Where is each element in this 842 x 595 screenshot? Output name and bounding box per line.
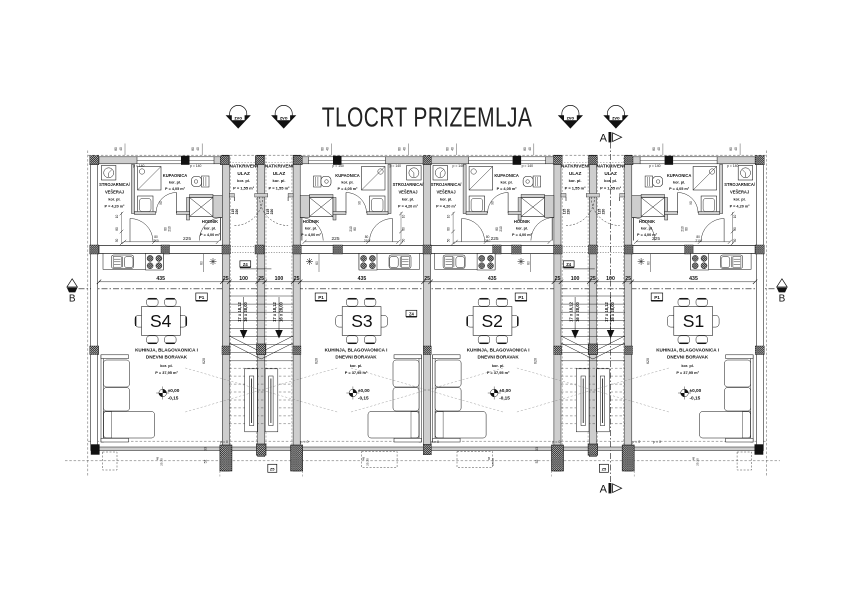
svg-text:80: 80 xyxy=(685,227,689,231)
svg-text:-0,15: -0,15 xyxy=(690,396,701,401)
svg-text:210: 210 xyxy=(349,226,353,232)
svg-text:HODNIK: HODNIK xyxy=(514,219,530,224)
svg-text:kor. pl.: kor. pl. xyxy=(341,180,353,184)
svg-text:80: 80 xyxy=(447,227,451,231)
svg-text:S3: S3 xyxy=(351,311,372,331)
svg-text:210: 210 xyxy=(485,239,491,243)
svg-text:kor. pl.: kor. pl. xyxy=(492,363,505,368)
svg-text:kor. pl.: kor. pl. xyxy=(204,227,216,231)
svg-text:620: 620 xyxy=(315,358,319,364)
svg-text:25: 25 xyxy=(424,276,430,282)
svg-text:P = 4,20 m²: P = 4,20 m² xyxy=(398,205,419,209)
svg-text:50: 50 xyxy=(733,239,737,243)
svg-text:16 x 28,00: 16 x 28,00 xyxy=(279,301,284,321)
svg-text:P = 37,95 m²: P = 37,95 m² xyxy=(487,370,510,375)
svg-text:p = 140: p = 140 xyxy=(190,164,202,168)
svg-text:620: 620 xyxy=(646,358,650,364)
svg-text:80: 80 xyxy=(320,147,324,151)
svg-text:kor. pl.: kor. pl. xyxy=(500,180,512,184)
svg-text:40: 40 xyxy=(528,147,532,151)
svg-text:16 x 28,00: 16 x 28,00 xyxy=(610,301,615,321)
svg-text:kor. pl.: kor. pl. xyxy=(681,363,694,368)
svg-text:p = 140: p = 140 xyxy=(522,164,534,168)
svg-text:ULAZ: ULAZ xyxy=(273,171,286,176)
svg-text:KUHINJA, BLAGOVAONICA i: KUHINJA, BLAGOVAONICA i xyxy=(656,348,719,353)
svg-text:P = 4,05 m²: P = 4,05 m² xyxy=(338,187,359,191)
svg-text:P = 4,05 m²: P = 4,05 m² xyxy=(165,187,186,191)
svg-text:620: 620 xyxy=(202,358,206,364)
svg-text:A: A xyxy=(600,133,608,145)
svg-text:kor. pl.: kor. pl. xyxy=(516,227,528,231)
svg-text:25: 25 xyxy=(590,276,596,282)
svg-text:33: 33 xyxy=(203,447,207,451)
svg-text:p = 0: p = 0 xyxy=(220,440,228,444)
svg-text:60: 60 xyxy=(315,261,319,265)
svg-text:p = 140: p = 140 xyxy=(453,164,465,168)
svg-text:100: 100 xyxy=(606,276,615,282)
svg-text:STROJARNICA/: STROJARNICA/ xyxy=(99,182,131,187)
svg-text:VEŠERAJ: VEŠERAJ xyxy=(105,189,124,194)
svg-text:50: 50 xyxy=(402,239,406,243)
svg-text:80: 80 xyxy=(115,227,119,231)
svg-text:80: 80 xyxy=(446,147,450,151)
svg-text:VEŠERAJ: VEŠERAJ xyxy=(398,189,417,194)
svg-text:P1: P1 xyxy=(654,295,660,300)
svg-text:±0,00: ±0,00 xyxy=(690,388,702,393)
svg-text:Z5: Z5 xyxy=(602,466,607,471)
svg-text:220: 220 xyxy=(567,209,571,215)
svg-text:90: 90 xyxy=(689,201,693,205)
svg-text:10: 10 xyxy=(402,215,406,219)
svg-text:50: 50 xyxy=(115,239,119,243)
svg-text:ULAZ: ULAZ xyxy=(604,171,617,176)
svg-text:90: 90 xyxy=(491,201,495,205)
svg-text:kor. pl.: kor. pl. xyxy=(569,178,582,183)
svg-text:25 20: 25 20 xyxy=(491,458,495,466)
svg-text:VEŠERAJ: VEŠERAJ xyxy=(730,189,749,194)
svg-text:kor. pl.: kor. pl. xyxy=(402,198,414,202)
svg-text:210: 210 xyxy=(168,226,172,232)
svg-text:p = 140: p = 140 xyxy=(390,164,402,168)
svg-text:33: 33 xyxy=(535,447,539,451)
svg-text:P = 4,00 m²: P = 4,00 m² xyxy=(200,233,221,237)
svg-text:25: 25 xyxy=(223,276,229,282)
svg-text:p = 140: p = 140 xyxy=(649,164,661,168)
svg-text:220: 220 xyxy=(235,209,239,215)
svg-text:210: 210 xyxy=(364,239,370,243)
svg-text:B: B xyxy=(779,294,786,305)
svg-text:P = 4,00 m²: P = 4,00 m² xyxy=(512,233,533,237)
svg-text:80: 80 xyxy=(729,147,733,151)
svg-text:Z4: Z4 xyxy=(566,262,572,267)
svg-text:40: 40 xyxy=(119,147,123,151)
svg-text:40: 40 xyxy=(325,147,329,151)
svg-text:435: 435 xyxy=(156,276,165,282)
svg-text:80: 80 xyxy=(523,147,527,151)
svg-text:NATKRIVENI: NATKRIVENI xyxy=(561,164,589,169)
svg-text:25: 25 xyxy=(555,276,561,282)
svg-text:10: 10 xyxy=(115,215,119,219)
svg-text:NATKRIVENI: NATKRIVENI xyxy=(265,164,293,169)
svg-text:P = 4,20 m²: P = 4,20 m² xyxy=(436,205,457,209)
svg-text:STROJARNICA/: STROJARNICA/ xyxy=(393,182,425,187)
svg-text:40: 40 xyxy=(657,147,661,151)
svg-text:kor. pl.: kor. pl. xyxy=(673,180,685,184)
svg-text:17 x 18,12: 17 x 18,12 xyxy=(237,301,242,321)
svg-text:P = 1,55 m²: P = 1,55 m² xyxy=(269,185,291,190)
svg-text:VEŠERAJ: VEŠERAJ xyxy=(437,189,456,194)
svg-text:Z4: Z4 xyxy=(243,262,249,267)
svg-text:90: 90 xyxy=(159,201,163,205)
svg-text:25: 25 xyxy=(258,276,264,282)
svg-text:KUHINJA, BLAGOVAONICA i: KUHINJA, BLAGOVAONICA i xyxy=(325,348,388,353)
svg-text:P = 4,05 m²: P = 4,05 m² xyxy=(497,187,518,191)
svg-text:DNEVNI BORAVAK: DNEVNI BORAVAK xyxy=(667,355,709,360)
svg-text:80: 80 xyxy=(652,147,656,151)
svg-text:17 x 18,12: 17 x 18,12 xyxy=(604,301,609,321)
svg-text:kor. pl.: kor. pl. xyxy=(237,178,250,183)
svg-text:80: 80 xyxy=(114,147,118,151)
svg-text:KUHINJA, BLAGOVAONICA i: KUHINJA, BLAGOVAONICA i xyxy=(135,348,198,353)
svg-text:kor. pl.: kor. pl. xyxy=(273,178,286,183)
svg-text:S4: S4 xyxy=(150,311,172,331)
svg-text:50: 50 xyxy=(447,239,451,243)
svg-text:kor. pl.: kor. pl. xyxy=(733,198,745,202)
svg-text:Z5: Z5 xyxy=(270,466,275,471)
svg-text:10: 10 xyxy=(733,215,737,219)
svg-text:p = 0: p = 0 xyxy=(431,440,439,444)
svg-text:210: 210 xyxy=(695,239,701,243)
svg-text:80: 80 xyxy=(353,227,357,231)
svg-text:435: 435 xyxy=(358,276,367,282)
svg-text:40: 40 xyxy=(734,147,738,151)
svg-text:kor. pl.: kor. pl. xyxy=(604,178,617,183)
svg-text:100: 100 xyxy=(275,276,284,282)
svg-text:KUPAONICA: KUPAONICA xyxy=(494,173,519,178)
svg-text:40: 40 xyxy=(196,147,200,151)
svg-text:DNEVNI BORAVAK: DNEVNI BORAVAK xyxy=(478,355,520,360)
svg-text:DNEVNI BORAVAK: DNEVNI BORAVAK xyxy=(335,355,377,360)
svg-text:zvo: zvo xyxy=(280,115,288,120)
svg-text:zvo: zvo xyxy=(234,115,242,120)
svg-text:210: 210 xyxy=(153,239,159,243)
svg-text:HODNIK: HODNIK xyxy=(303,219,319,224)
svg-text:80: 80 xyxy=(398,147,402,151)
svg-text:DNEVNI BORAVAK: DNEVNI BORAVAK xyxy=(146,355,188,360)
svg-text:225: 225 xyxy=(331,236,339,242)
svg-text:210: 210 xyxy=(499,226,503,232)
svg-text:225: 225 xyxy=(183,236,191,242)
svg-text:-0,15: -0,15 xyxy=(168,396,179,401)
svg-text:-0,15: -0,15 xyxy=(358,396,369,401)
svg-text:100: 100 xyxy=(239,276,248,282)
svg-text:620: 620 xyxy=(534,358,538,364)
svg-text:p = 0: p = 0 xyxy=(653,440,661,444)
svg-text:10: 10 xyxy=(447,215,451,219)
svg-text:STROJARNICA/: STROJARNICA/ xyxy=(724,182,756,187)
svg-text:P = 1,55 m²: P = 1,55 m² xyxy=(565,185,587,190)
svg-text:52: 52 xyxy=(535,460,539,464)
svg-text:25 20: 25 20 xyxy=(366,458,370,466)
svg-text:P = 37,95 m²: P = 37,95 m² xyxy=(676,370,699,375)
svg-text:225: 225 xyxy=(491,236,499,242)
svg-text:40: 40 xyxy=(451,147,455,151)
svg-text:90: 90 xyxy=(358,201,362,205)
svg-text:25 20: 25 20 xyxy=(160,458,164,466)
svg-text:P = 1,55 m²: P = 1,55 m² xyxy=(233,185,255,190)
svg-text:A: A xyxy=(600,484,608,496)
svg-text:NATKRIVENI: NATKRIVENI xyxy=(596,164,624,169)
svg-text:P1: P1 xyxy=(199,295,205,300)
svg-text:kor. pl.: kor. pl. xyxy=(305,227,317,231)
svg-text:±0,00: ±0,00 xyxy=(168,388,180,393)
svg-text:25: 25 xyxy=(294,276,300,282)
svg-text:60: 60 xyxy=(647,261,651,265)
svg-text:17 x 18,12: 17 x 18,12 xyxy=(568,301,573,321)
svg-text:80: 80 xyxy=(191,147,195,151)
svg-text:p = 140: p = 140 xyxy=(332,164,344,168)
svg-text:kor. pl.: kor. pl. xyxy=(160,363,173,368)
svg-text:KUPAONICA: KUPAONICA xyxy=(163,173,188,178)
svg-text:P1: P1 xyxy=(518,295,524,300)
svg-text:ULAZ: ULAZ xyxy=(569,171,582,176)
svg-text:kor. pl.: kor. pl. xyxy=(108,198,120,202)
svg-text:60: 60 xyxy=(527,261,531,265)
svg-text:HODNIK: HODNIK xyxy=(202,219,218,224)
svg-text:STROJARNICA/: STROJARNICA/ xyxy=(431,182,463,187)
svg-text:P = 4,00 m²: P = 4,00 m² xyxy=(301,233,322,237)
svg-text:210: 210 xyxy=(681,226,685,232)
svg-text:P = 4,20 m²: P = 4,20 m² xyxy=(105,205,126,209)
svg-text:S1: S1 xyxy=(683,311,704,331)
svg-text:S2: S2 xyxy=(481,311,502,331)
svg-text:435: 435 xyxy=(689,276,698,282)
svg-text:±0,00: ±0,00 xyxy=(499,388,511,393)
svg-text:NATKRIVENI: NATKRIVENI xyxy=(229,164,257,169)
svg-text:p = 140: p = 140 xyxy=(727,164,739,168)
svg-text:p = 0: p = 0 xyxy=(300,440,308,444)
svg-text:KUPAONICA: KUPAONICA xyxy=(667,173,692,178)
svg-text:kor. pl.: kor. pl. xyxy=(169,180,181,184)
svg-text:P = 4,20 m²: P = 4,20 m² xyxy=(730,205,751,209)
svg-text:P = 37,95 m²: P = 37,95 m² xyxy=(345,370,368,375)
svg-text:16 x 28,00: 16 x 28,00 xyxy=(575,301,580,321)
svg-text:p = 0: p = 0 xyxy=(552,440,560,444)
svg-text:p = 140: p = 140 xyxy=(133,164,145,168)
svg-text:100: 100 xyxy=(571,276,580,282)
svg-text:P = 1,55 m²: P = 1,55 m² xyxy=(600,185,622,190)
svg-text:TLOCRT PRIZEMLJA: TLOCRT PRIZEMLJA xyxy=(322,103,533,134)
svg-text:P = 4,05 m²: P = 4,05 m² xyxy=(669,187,690,191)
svg-text:25: 25 xyxy=(625,276,631,282)
svg-text:kor. pl.: kor. pl. xyxy=(350,363,363,368)
svg-text:B: B xyxy=(69,294,76,305)
svg-text:52: 52 xyxy=(203,460,207,464)
svg-text:225: 225 xyxy=(652,236,660,242)
svg-text:40: 40 xyxy=(403,147,407,151)
svg-text:±0,00: ±0,00 xyxy=(358,388,370,393)
svg-text:220: 220 xyxy=(602,209,606,215)
svg-text:60: 60 xyxy=(200,261,204,265)
svg-text:16 x 28,00: 16 x 28,00 xyxy=(243,301,248,321)
svg-text:zvo: zvo xyxy=(612,115,620,120)
svg-text:435: 435 xyxy=(488,276,497,282)
svg-text:p = 0: p = 0 xyxy=(632,440,640,444)
svg-text:KUHINJA, BLAGOVAONICA i: KUHINJA, BLAGOVAONICA i xyxy=(467,348,530,353)
svg-text:25 20: 25 20 xyxy=(696,458,700,466)
svg-text:-0,15: -0,15 xyxy=(499,396,510,401)
svg-text:17 x 18,12: 17 x 18,12 xyxy=(272,301,277,321)
svg-text:220: 220 xyxy=(270,209,274,215)
svg-text:kor. pl.: kor. pl. xyxy=(440,198,452,202)
svg-text:KUPAONICA: KUPAONICA xyxy=(335,173,360,178)
svg-text:ULAZ: ULAZ xyxy=(237,171,250,176)
svg-text:P1: P1 xyxy=(318,295,324,300)
svg-text:Z4: Z4 xyxy=(409,311,415,316)
svg-text:P = 37,95 m²: P = 37,95 m² xyxy=(155,370,178,375)
svg-text:zvo: zvo xyxy=(567,115,575,120)
